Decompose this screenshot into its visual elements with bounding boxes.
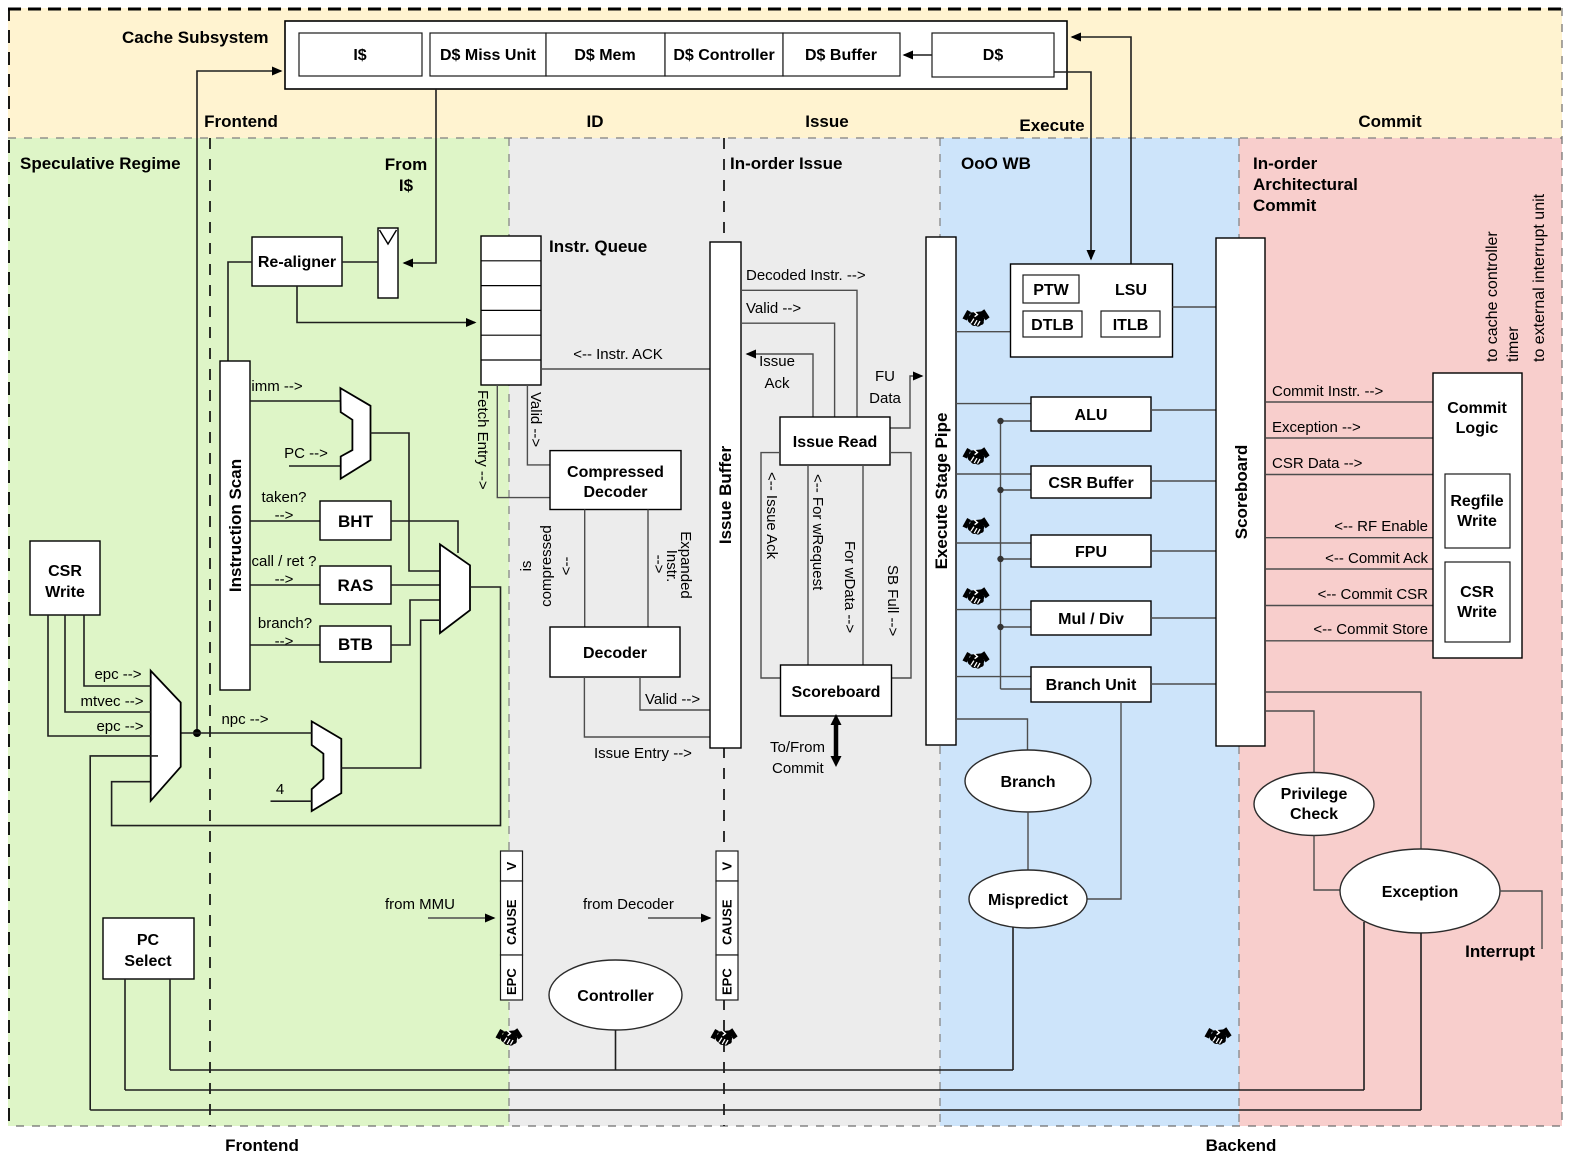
svg-text:Instr. Queue: Instr. Queue (549, 237, 647, 256)
svg-text:Privilege: Privilege (1281, 786, 1348, 803)
svg-text:Branch: Branch (1000, 774, 1055, 791)
svg-text:Exception: Exception (1382, 884, 1458, 901)
svg-text:Frontend: Frontend (225, 1136, 299, 1155)
svg-text:Commit Instr. -->: Commit Instr. --> (1272, 383, 1384, 400)
svg-text:Architectural: Architectural (1253, 175, 1358, 194)
svg-text:Write: Write (45, 584, 85, 601)
svg-text:In-order: In-order (1253, 154, 1318, 173)
svg-text:Select: Select (124, 953, 172, 970)
svg-text:In-order Issue: In-order Issue (730, 154, 842, 173)
svg-text:Exception -->: Exception --> (1272, 419, 1361, 436)
svg-text:Commit: Commit (772, 760, 824, 777)
svg-text:LSU: LSU (1115, 282, 1147, 299)
svg-text:Logic: Logic (1456, 420, 1499, 437)
svg-text:timer: timer (1505, 326, 1522, 362)
svg-text:-->: --> (650, 555, 667, 574)
svg-text:imm -->: imm --> (251, 378, 302, 395)
svg-text:Interrupt: Interrupt (1465, 942, 1535, 961)
svg-text:ITLB: ITLB (1113, 317, 1149, 334)
svg-text:Instruction Scan: Instruction Scan (226, 459, 245, 592)
svg-text:branch?: branch? (258, 615, 312, 632)
svg-text:Issue: Issue (759, 353, 795, 370)
svg-text:PTW: PTW (1033, 282, 1069, 299)
svg-text:Issue Entry -->: Issue Entry --> (594, 745, 692, 762)
svg-text:CAUSE: CAUSE (504, 899, 519, 945)
svg-text:ID: ID (587, 112, 604, 131)
svg-text:Execute Stage Pipe: Execute Stage Pipe (932, 413, 951, 570)
svg-text:Controller: Controller (577, 988, 653, 1005)
svg-text:Cache Subsystem: Cache Subsystem (122, 28, 268, 47)
svg-text:Frontend: Frontend (204, 112, 278, 131)
svg-text:Scoreboard: Scoreboard (1232, 445, 1251, 539)
svg-text:Valid -->: Valid --> (746, 300, 801, 317)
svg-text:Commit: Commit (1358, 112, 1422, 131)
svg-text:CAUSE: CAUSE (720, 899, 735, 945)
svg-text:Issue Read: Issue Read (793, 434, 877, 451)
svg-text:<-- RF Enable: <-- RF Enable (1334, 518, 1428, 535)
svg-text:to cache controller: to cache controller (1484, 231, 1501, 362)
svg-text:To/From: To/From (770, 739, 825, 756)
svg-text:Execute: Execute (1019, 116, 1084, 135)
svg-text:D$ Controller: D$ Controller (673, 47, 774, 64)
svg-text:D$ Buffer: D$ Buffer (805, 47, 877, 64)
svg-text:Fetch Entry -->: Fetch Entry --> (474, 390, 491, 490)
svg-text:epc -->: epc --> (94, 666, 141, 683)
svg-text:is: is (518, 561, 535, 572)
svg-text:SB Full -->: SB Full --> (884, 565, 901, 637)
svg-text:CSR Data -->: CSR Data --> (1272, 455, 1363, 472)
svg-text:Re-aligner: Re-aligner (258, 254, 336, 271)
svg-text:BTB: BTB (338, 635, 373, 654)
svg-text:V: V (504, 862, 519, 871)
svg-text:RAS: RAS (338, 576, 374, 595)
svg-text:Issue Buffer: Issue Buffer (716, 445, 735, 544)
svg-text:Mul / Div: Mul / Div (1058, 611, 1124, 628)
svg-text:Scoreboard: Scoreboard (792, 684, 881, 701)
svg-text:Data: Data (869, 390, 901, 407)
svg-text:FU: FU (875, 368, 895, 385)
svg-text:Decoded Instr. -->: Decoded Instr. --> (746, 267, 866, 284)
svg-text:D$: D$ (983, 47, 1004, 64)
svg-text:Compressed: Compressed (567, 464, 664, 481)
svg-text:DTLB: DTLB (1031, 317, 1074, 334)
svg-text:to external interrupt unit: to external interrupt unit (1531, 193, 1548, 362)
svg-text:Valid -->: Valid --> (645, 691, 700, 708)
svg-text:<-- Commit CSR: <-- Commit CSR (1318, 586, 1429, 603)
svg-text:call / ret ?: call / ret ? (251, 553, 316, 570)
svg-text:Commit: Commit (1253, 196, 1317, 215)
svg-text:Branch Unit: Branch Unit (1046, 677, 1137, 694)
svg-text:Decoder: Decoder (583, 484, 647, 501)
svg-text:For wData -->: For wData --> (841, 541, 858, 633)
svg-text:Issue: Issue (805, 112, 848, 131)
svg-text:taken?: taken? (261, 489, 306, 506)
svg-text:D$ Mem: D$ Mem (574, 47, 635, 64)
svg-text:Backend: Backend (1206, 1136, 1277, 1155)
svg-text:CSR: CSR (1460, 584, 1494, 601)
svg-text:epc -->: epc --> (96, 718, 143, 735)
svg-text:ALU: ALU (1075, 407, 1108, 424)
svg-text:<-- Commit Store: <-- Commit Store (1313, 621, 1428, 638)
svg-text:npc -->: npc --> (221, 711, 268, 728)
svg-text:EPC: EPC (504, 968, 519, 995)
svg-text:Ack: Ack (764, 375, 790, 392)
svg-text:Commit: Commit (1447, 400, 1507, 417)
svg-text:from Decoder: from Decoder (583, 896, 674, 913)
svg-text:from MMU: from MMU (385, 896, 455, 913)
svg-text:OoO WB: OoO WB (961, 154, 1031, 173)
svg-text:<-- For wRequest: <-- For wRequest (809, 474, 826, 591)
svg-text:CSR Buffer: CSR Buffer (1048, 475, 1133, 492)
svg-text:<--: <-- (558, 557, 575, 576)
svg-text:Regfile: Regfile (1450, 493, 1503, 510)
svg-text:4: 4 (276, 781, 284, 798)
svg-text:From: From (385, 155, 428, 174)
svg-text:<-- Commit Ack: <-- Commit Ack (1325, 550, 1428, 567)
svg-text:V: V (720, 862, 735, 871)
svg-text:mtvec -->: mtvec --> (81, 693, 144, 710)
svg-text:I$: I$ (399, 176, 414, 195)
svg-text:Write: Write (1457, 513, 1497, 530)
svg-text:PC: PC (137, 932, 160, 949)
svg-text:Write: Write (1457, 604, 1497, 621)
svg-text:compressed: compressed (538, 525, 555, 607)
svg-text:PC -->: PC --> (284, 445, 328, 462)
svg-text:Speculative Regime: Speculative Regime (20, 154, 181, 173)
svg-text:<-- Issue Ack: <-- Issue Ack (763, 472, 780, 560)
svg-text:Valid -->: Valid --> (527, 392, 544, 447)
svg-text:Mispredict: Mispredict (988, 892, 1069, 909)
svg-text:-->: --> (275, 633, 294, 650)
svg-text:CSR: CSR (48, 563, 82, 580)
svg-text:Decoder: Decoder (583, 645, 647, 662)
svg-text:FPU: FPU (1075, 544, 1107, 561)
svg-text:-->: --> (275, 571, 294, 588)
svg-text:EPC: EPC (720, 968, 735, 995)
svg-text:<-- Instr. ACK: <-- Instr. ACK (573, 346, 663, 363)
svg-text:BHT: BHT (338, 512, 374, 531)
svg-text:D$ Miss Unit: D$ Miss Unit (440, 47, 537, 64)
svg-text:-->: --> (275, 507, 294, 524)
svg-text:Check: Check (1290, 806, 1338, 823)
svg-text:I$: I$ (353, 47, 366, 64)
